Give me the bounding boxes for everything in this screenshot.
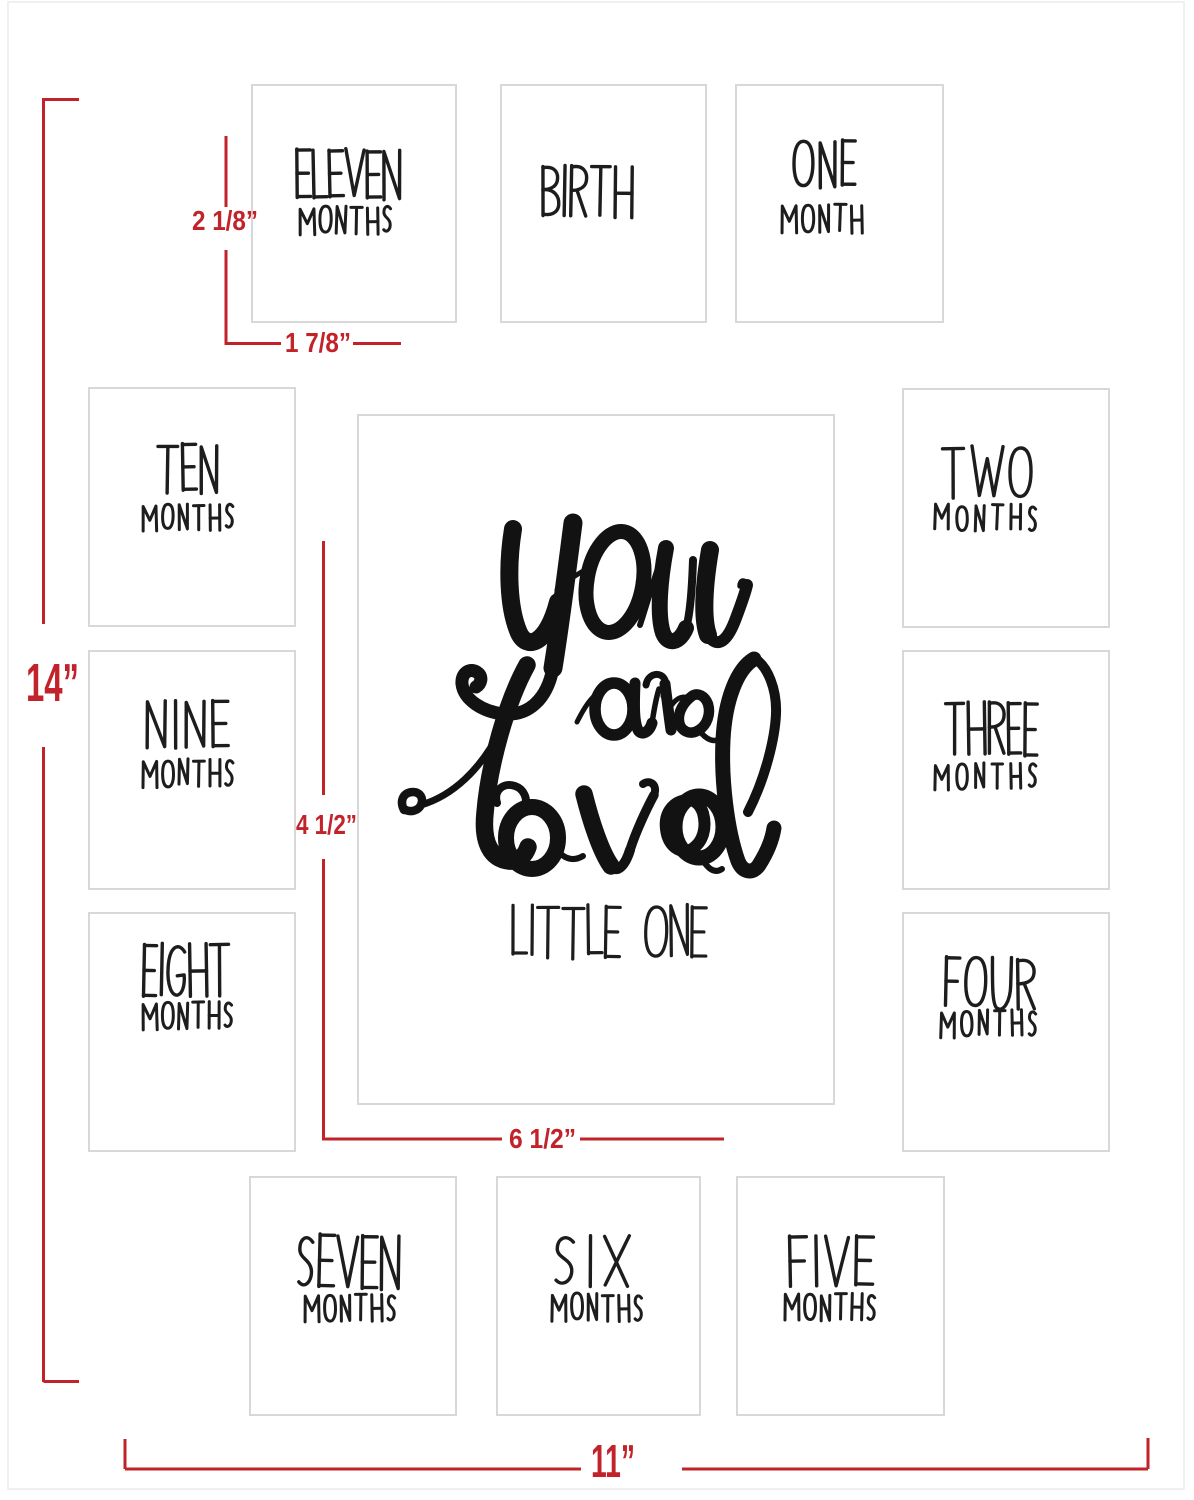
svg-text:14”: 14” <box>26 653 79 713</box>
svg-text:4 1/2”: 4 1/2” <box>296 809 357 840</box>
svg-text:2 1/8”: 2 1/8” <box>192 205 258 236</box>
svg-text:11”: 11” <box>591 1435 635 1487</box>
svg-text:6 1/2”: 6 1/2” <box>509 1123 576 1154</box>
svg-text:1 7/8”: 1 7/8” <box>285 327 351 358</box>
